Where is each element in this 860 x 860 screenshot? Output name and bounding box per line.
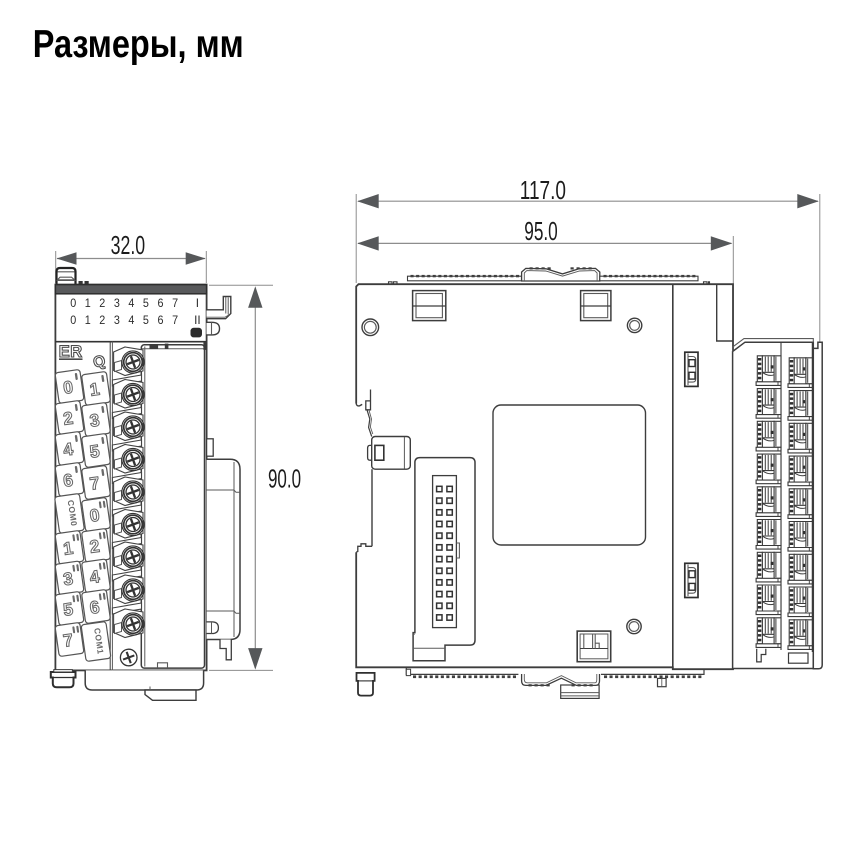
svg-text:90.0: 90.0 (268, 465, 301, 493)
svg-text:6: 6 (158, 313, 164, 327)
svg-text:4: 4 (128, 313, 134, 327)
svg-text:4: 4 (128, 296, 134, 310)
svg-text:3: 3 (114, 313, 120, 327)
svg-text:117.0: 117.0 (520, 177, 566, 205)
svg-text:32.0: 32.0 (111, 232, 146, 260)
svg-text:2: 2 (99, 313, 105, 327)
svg-text:3: 3 (114, 296, 120, 310)
svg-text:7: 7 (172, 296, 178, 310)
svg-text:5: 5 (143, 313, 149, 327)
svg-text:1: 1 (85, 296, 91, 310)
svg-text:95.0: 95.0 (524, 218, 558, 246)
svg-text:II: II (194, 313, 201, 327)
svg-text:2: 2 (99, 296, 105, 310)
svg-text:5: 5 (143, 296, 149, 310)
svg-text:0: 0 (70, 313, 76, 327)
svg-text:ER: ER (59, 343, 83, 361)
svg-text:1: 1 (85, 313, 91, 327)
svg-text:I: I (196, 296, 199, 310)
svg-text:Размеры, мм: Размеры, мм (33, 23, 244, 66)
svg-text:6: 6 (158, 296, 164, 310)
svg-text:0: 0 (70, 296, 76, 310)
svg-text:7: 7 (172, 313, 178, 327)
